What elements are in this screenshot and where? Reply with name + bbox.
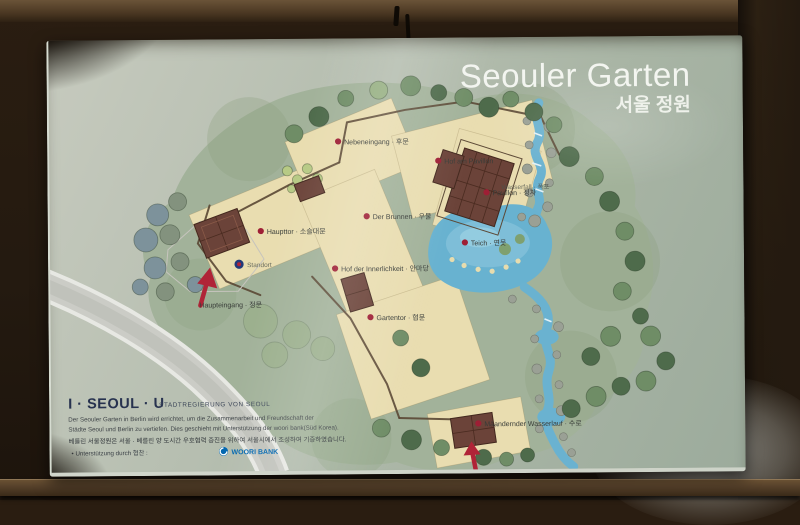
- marker-gartentor: [367, 314, 373, 320]
- label-hof-am-pavillon: Hof am Pavillon: [444, 158, 493, 165]
- marker-nebeneingang: [335, 138, 341, 144]
- marker-hof-der-innerlichkeit: [332, 265, 338, 271]
- you-are-here-marker: [234, 260, 243, 269]
- label-haupttor: Haupttor · 소슬대문: [267, 227, 326, 236]
- wood-frame-bottom-slat: [0, 479, 800, 496]
- board-title-korean: 서울 정원: [616, 94, 691, 117]
- map-sign-board: Haupteingang · 정문 Haupttor · 소슬대문 Stando…: [46, 35, 745, 476]
- seoul-government-label: STADTREGIERUNG VON SEOUL: [159, 401, 270, 409]
- label-haupteingang: Haupteingang · 정문: [199, 300, 262, 309]
- iseoulu-logo: I · SEOUL · U: [68, 396, 165, 413]
- wood-knot-mark: [393, 6, 399, 26]
- label-standort: Standort: [247, 262, 272, 269]
- pond-island: [515, 234, 525, 244]
- marker-pavillon: [483, 189, 489, 195]
- marker-brunnen: [364, 213, 370, 219]
- photo-of-map-sign: { "title": { "de": "Seouler Garten", "ko…: [0, 0, 800, 500]
- marker-haupttor: [258, 228, 264, 234]
- wood-frame-top-beam: [0, 0, 800, 22]
- board-title: Seouler Garten: [460, 56, 691, 95]
- marker-hof-am-pavillon: [435, 158, 441, 164]
- stream-house-building: [450, 412, 496, 448]
- marker-maeandernder-wasserlauf: [475, 420, 481, 426]
- support-label: • Unterstützung durch 협찬 :: [72, 449, 148, 458]
- marker-teich: [462, 239, 468, 245]
- label-wasserfall: Wasserfall · 폭포: [501, 183, 549, 191]
- garden-map-svg: Haupteingang · 정문 Haupttor · 소슬대문 Stando…: [48, 35, 745, 472]
- label-gartentor: Gartentor · 협문: [376, 313, 425, 322]
- woori-bank-name: WOORI BANK: [232, 449, 279, 456]
- label-teich: Teich · 연못: [471, 239, 507, 247]
- label-nebeneingang: Nebeneingang · 후문: [344, 138, 409, 147]
- label-maeandernder-wasserlauf: Mäandernder Wasserlauf · 수로: [484, 420, 582, 429]
- label-brunnen: Der Brunnen · 우물: [373, 213, 432, 221]
